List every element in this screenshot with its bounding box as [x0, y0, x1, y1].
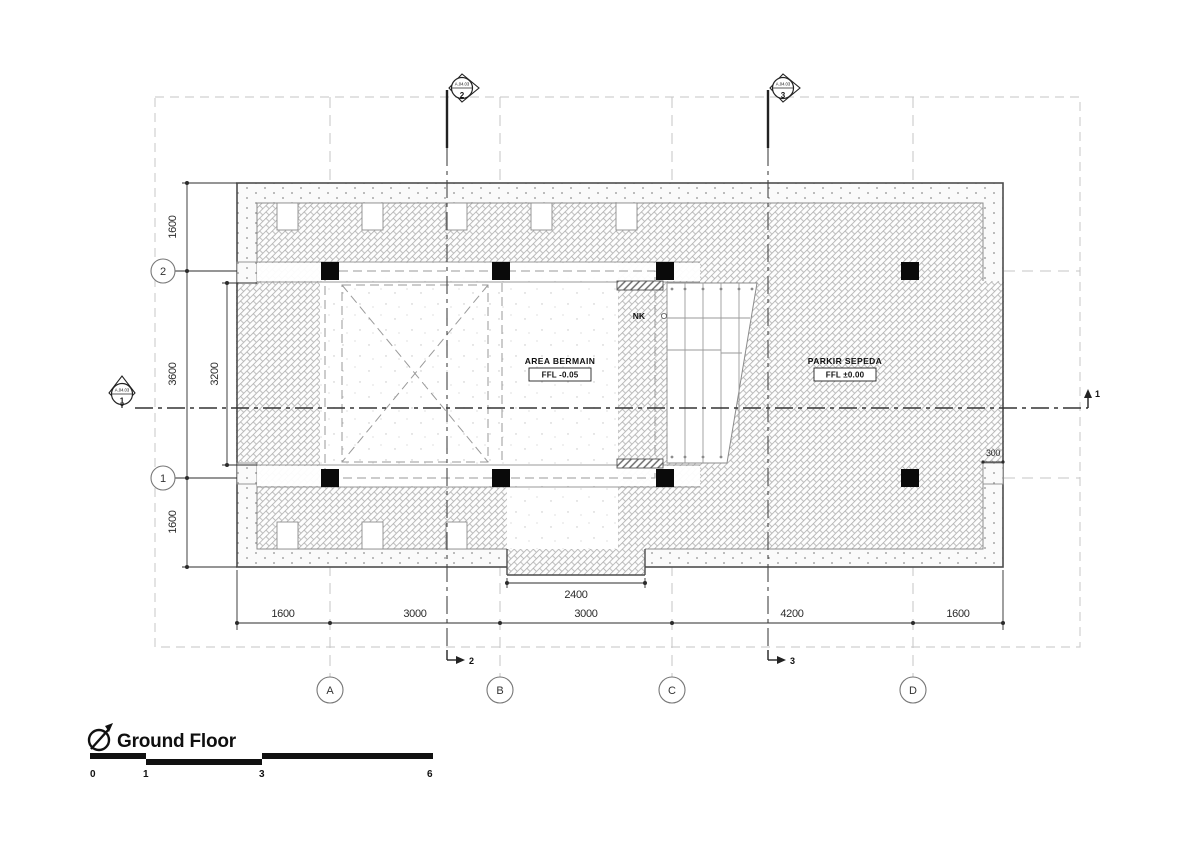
area-bermain-name: AREA BERMAIN — [525, 356, 596, 366]
grid-bubble-a: A — [326, 685, 334, 697]
floor-plan-sheet: 1 2 3 — [0, 0, 1200, 849]
section-marker-1-number: 1 — [120, 397, 125, 406]
dim-left-mid: 3600 — [167, 362, 179, 385]
section-marker-3-sheet: A.04.03 — [776, 82, 791, 87]
west-opening — [236, 284, 258, 462]
dim-left-inner: 3200 — [209, 362, 221, 385]
floor-plan-drawing: 1 2 3 — [0, 0, 1200, 849]
east-opening — [982, 281, 1004, 462]
scale-label-6: 6 — [427, 769, 433, 780]
section-tail-label-1: 1 — [1095, 389, 1100, 399]
parkir-sepeda-label: PARKIR SEPEDA FFL ±0.00 — [808, 356, 882, 381]
section-marker-1: A.04.03 1 — [109, 376, 135, 408]
grid-bubble-c: C — [668, 685, 676, 697]
dim-bottom-4: 4200 — [780, 608, 803, 620]
section-marker-3: A.04.03 3 — [770, 74, 800, 102]
dim-bottom-2: 3000 — [403, 608, 426, 620]
section-tail-label-3: 3 — [790, 656, 795, 666]
grid-bubble-b: B — [496, 685, 503, 697]
section-marker-3-number: 3 — [781, 91, 786, 100]
dim-bottom-inner: 2400 — [564, 589, 587, 601]
section-tail-label-2: 2 — [469, 656, 474, 666]
section-marker-1-sheet: A.04.03 — [115, 388, 130, 393]
dim-bottom-3: 3000 — [574, 608, 597, 620]
dim-bottom-1: 1600 — [271, 608, 294, 620]
section-marker-2: A.04.03 2 — [449, 74, 479, 102]
grid-bubble-d: D — [909, 685, 917, 697]
south-opening — [507, 548, 645, 575]
scale-bar — [90, 753, 433, 765]
parkir-sepeda-level: FFL ±0.00 — [826, 371, 865, 380]
plan-title: Ground Floor — [117, 731, 237, 752]
plan-symbol-icon — [89, 723, 113, 750]
title-block: Ground Floor 0 1 3 6 — [89, 723, 433, 780]
section-marker-2-number: 2 — [460, 91, 465, 100]
area-bermain-level: FFL -0.05 — [542, 371, 579, 380]
nk-label: NK — [633, 311, 646, 321]
scale-label-3: 3 — [259, 769, 265, 780]
grid-bubble-2: 2 — [160, 266, 166, 278]
area-bermain-label: AREA BERMAIN FFL -0.05 — [525, 356, 596, 381]
dim-left-top: 1600 — [167, 215, 179, 238]
scale-label-0: 0 — [90, 769, 96, 780]
dim-bottom-5: 1600 — [946, 608, 969, 620]
dim-right-wall: 300 — [986, 448, 1000, 458]
nk-marker-circle — [661, 313, 666, 318]
dim-left-bottom: 1600 — [167, 510, 179, 533]
section-marker-2-sheet: A.04.03 — [455, 82, 470, 87]
scale-label-1: 1 — [143, 769, 149, 780]
grid-bubble-1: 1 — [160, 473, 166, 485]
parkir-sepeda-name: PARKIR SEPEDA — [808, 356, 882, 366]
